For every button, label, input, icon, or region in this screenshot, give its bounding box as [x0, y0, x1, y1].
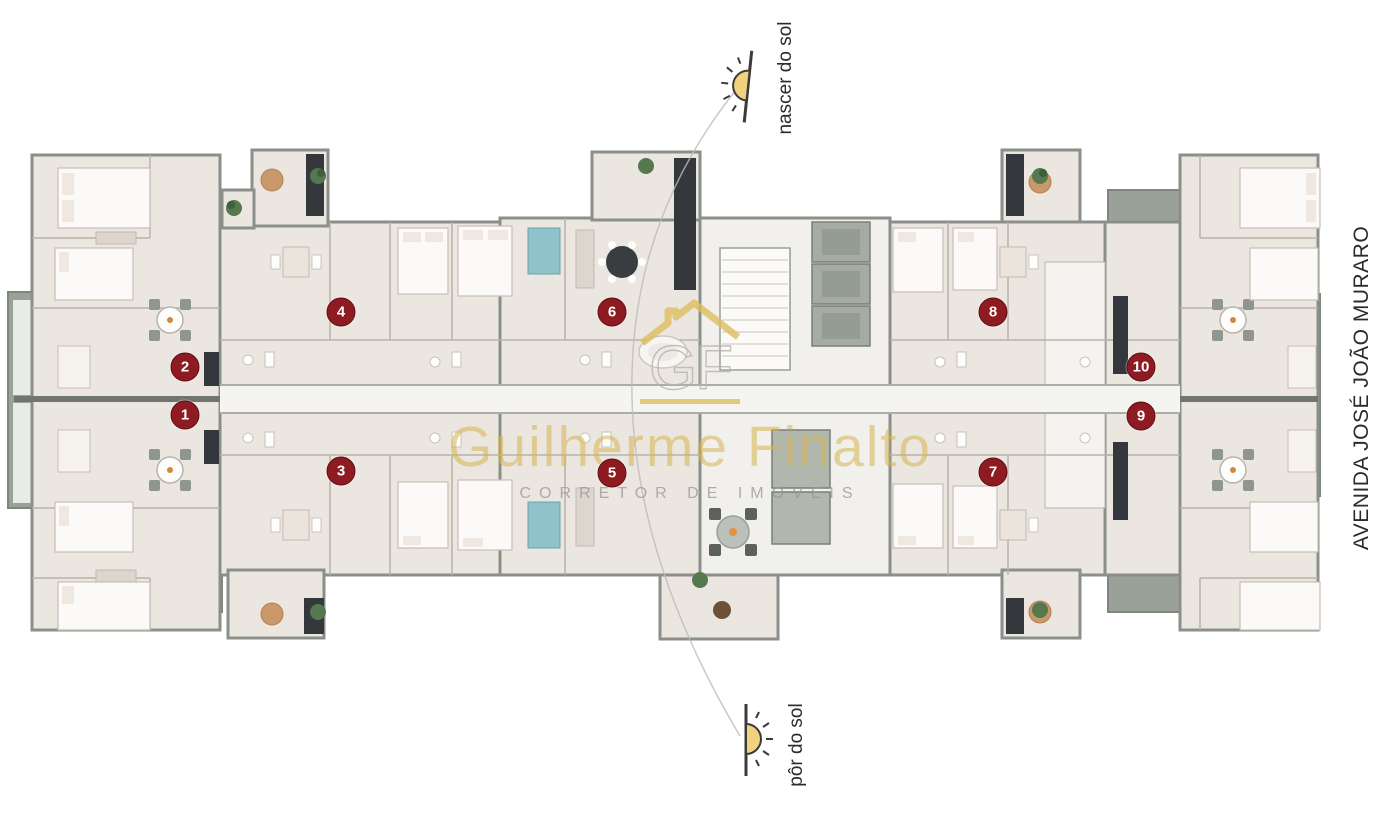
building-floorplan	[0, 0, 1400, 816]
teal-bed	[528, 228, 560, 274]
teal-bed	[528, 502, 560, 548]
sunrise-icon	[712, 44, 772, 129]
stairs	[720, 248, 790, 370]
unit-badge-8: 8	[979, 298, 1008, 327]
unit-badge-10: 10	[1127, 353, 1156, 382]
street-label: AVENIDA JOSÉ JOÃO MURARO	[1350, 226, 1374, 550]
sunrise-label: nascer do sol	[775, 21, 797, 134]
unit-badge-3: 3	[327, 457, 356, 486]
unit-badge-5: 5	[598, 459, 627, 488]
unit-badge-9: 9	[1127, 402, 1156, 431]
unit-badge-7: 7	[979, 458, 1008, 487]
sunset-icon	[726, 700, 778, 780]
unit-badge-2: 2	[171, 353, 200, 382]
unit-badge-6: 6	[598, 298, 627, 327]
floorplan-canvas: 12345678910 GF Guilherme Finalto CORRETO…	[0, 0, 1400, 816]
sunset-label: pôr do sol	[786, 703, 808, 786]
unit-badge-1: 1	[171, 401, 200, 430]
unit-badge-4: 4	[327, 298, 356, 327]
